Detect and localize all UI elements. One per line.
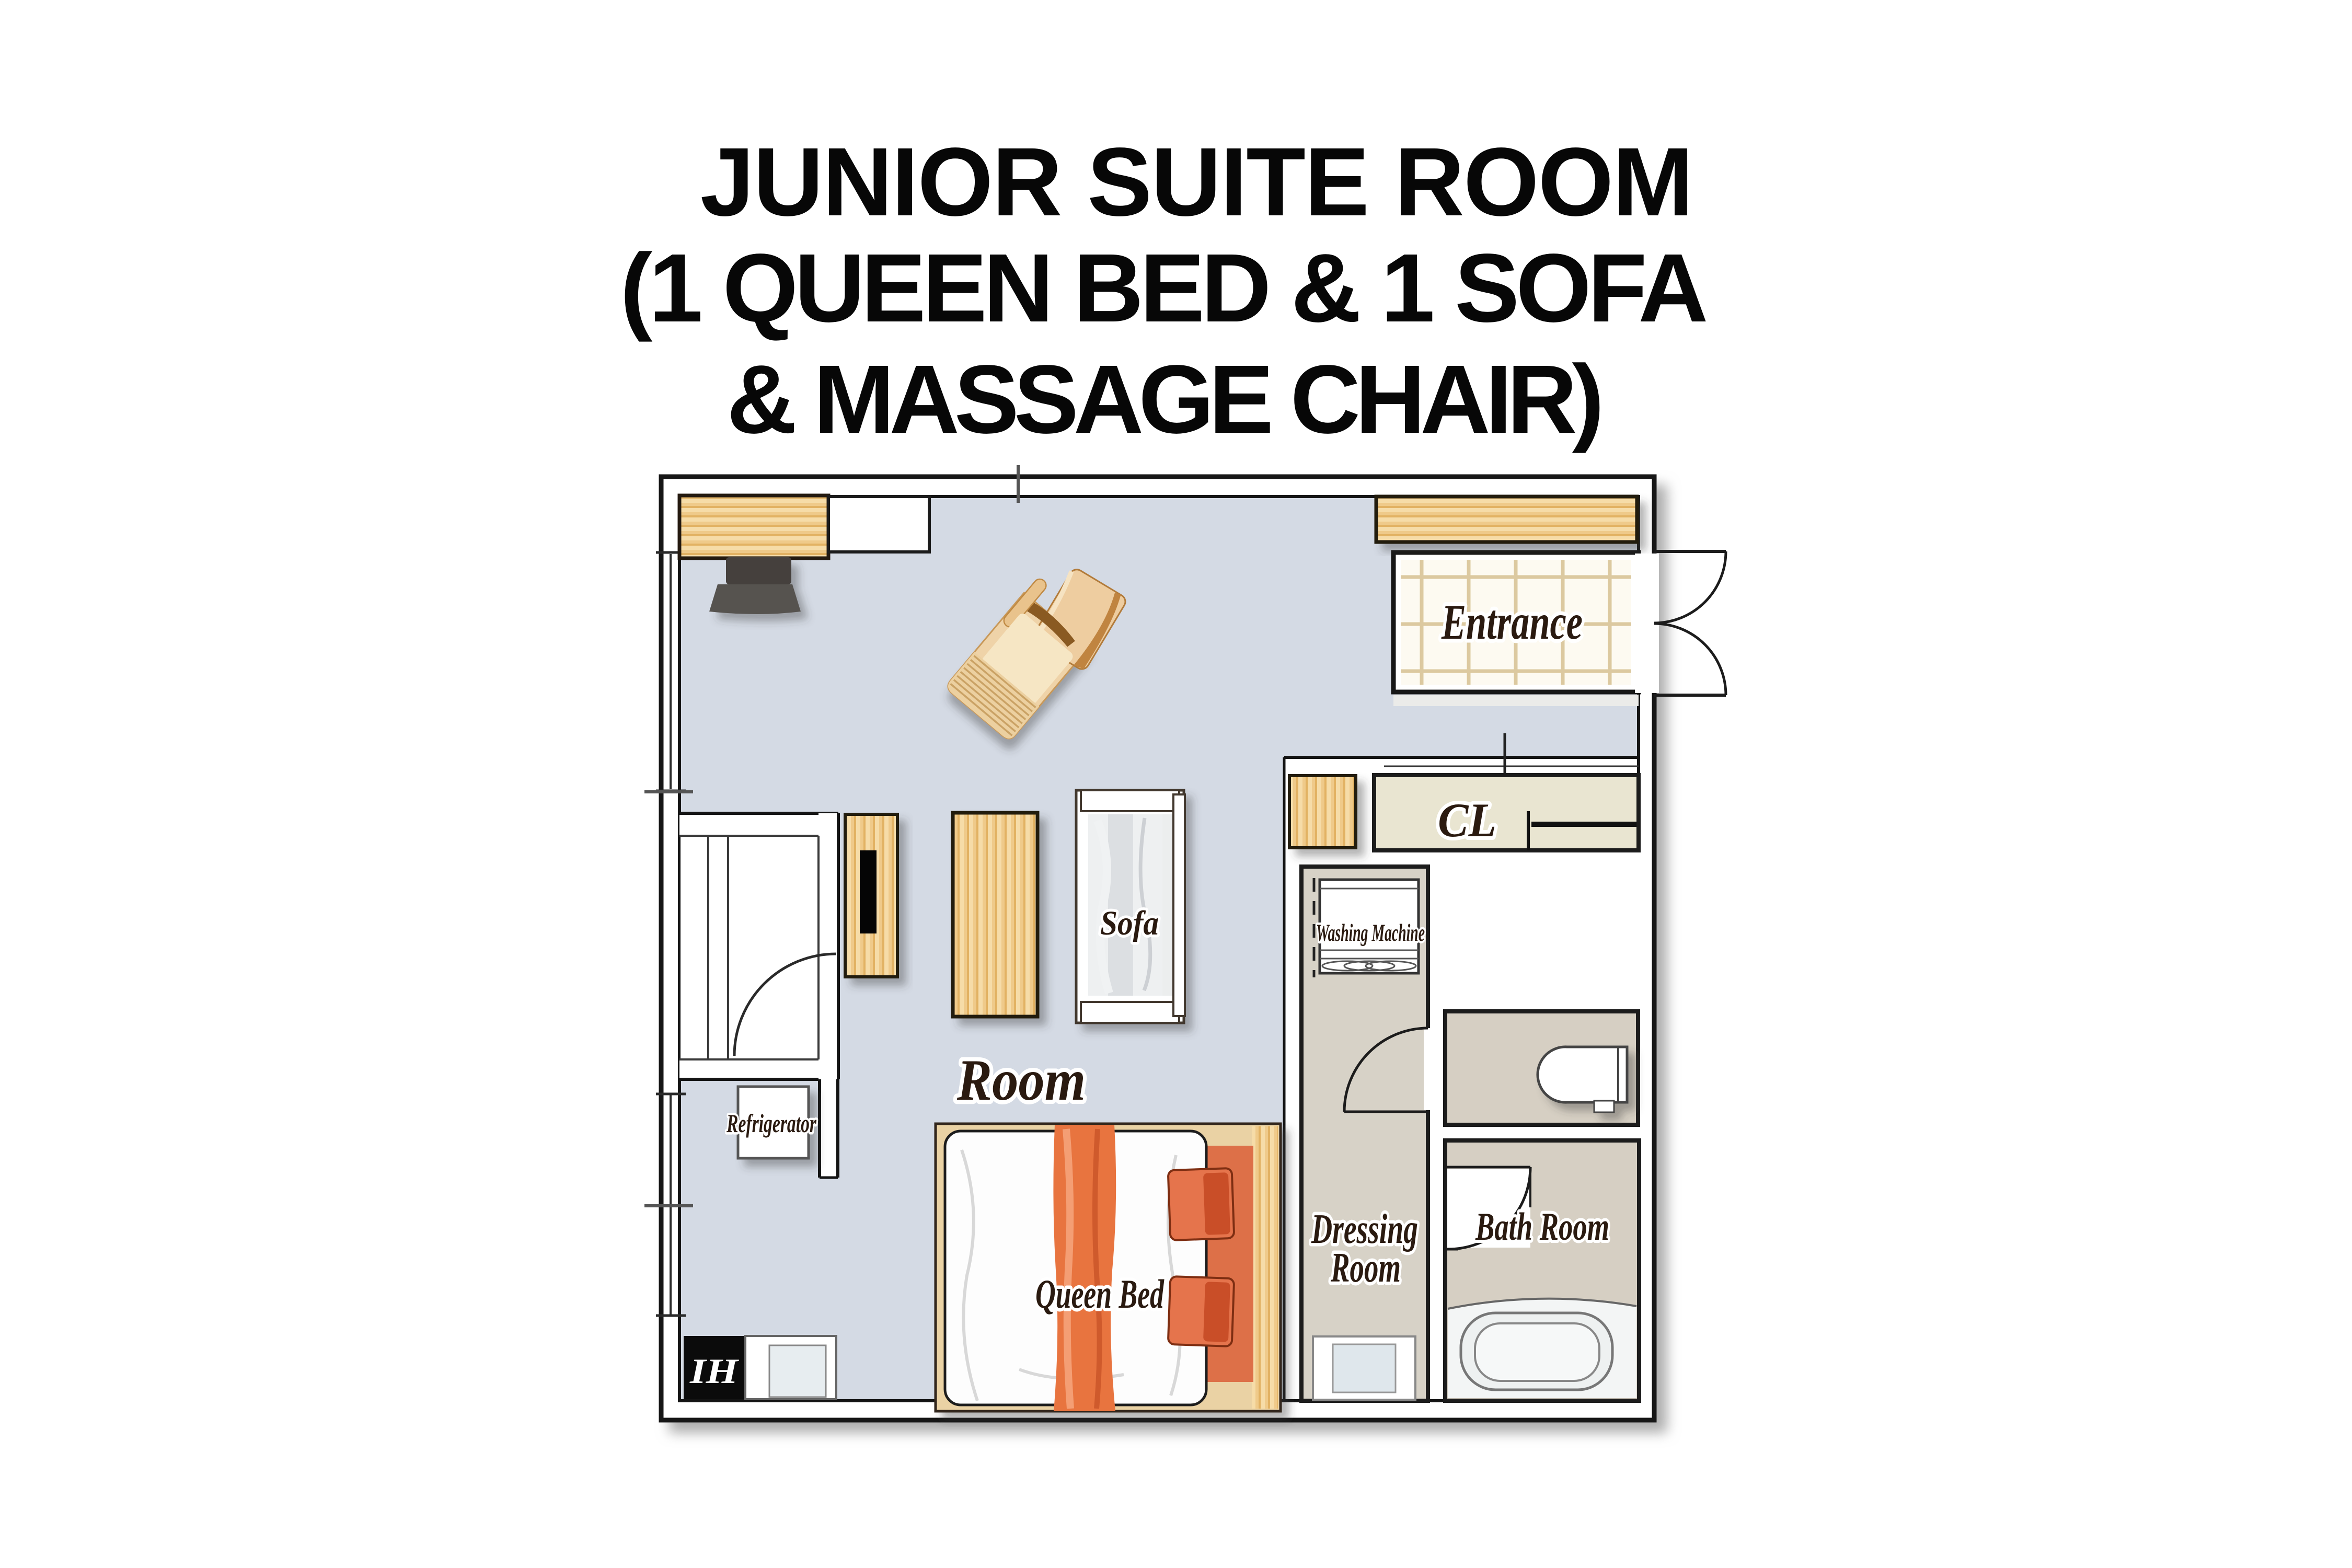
svg-text:Queen Bed: Queen Bed (1035, 1271, 1165, 1317)
svg-text:Room: Room (1330, 1245, 1401, 1291)
svg-text:Washing Machine: Washing Machine (1316, 919, 1425, 947)
svg-text:Room: Room (956, 1048, 1086, 1113)
svg-text:Sofa: Sofa (1100, 904, 1159, 942)
svg-text:Bath Room: Bath Room (1475, 1205, 1609, 1249)
svg-text:CL: CL (1438, 793, 1496, 847)
svg-text:Entrance: Entrance (1441, 594, 1583, 650)
svg-text:(1 QUEEN BED & 1 SOFA: (1 QUEEN BED & 1 SOFA (620, 234, 1706, 342)
svg-text:JUNIOR SUITE ROOM: JUNIOR SUITE ROOM (700, 128, 1692, 236)
svg-text:& MASSAGE CHAIR): & MASSAGE CHAIR) (727, 345, 1599, 454)
svg-text:IH: IH (689, 1351, 740, 1391)
svg-text:Refrigerator: Refrigerator (726, 1109, 816, 1138)
